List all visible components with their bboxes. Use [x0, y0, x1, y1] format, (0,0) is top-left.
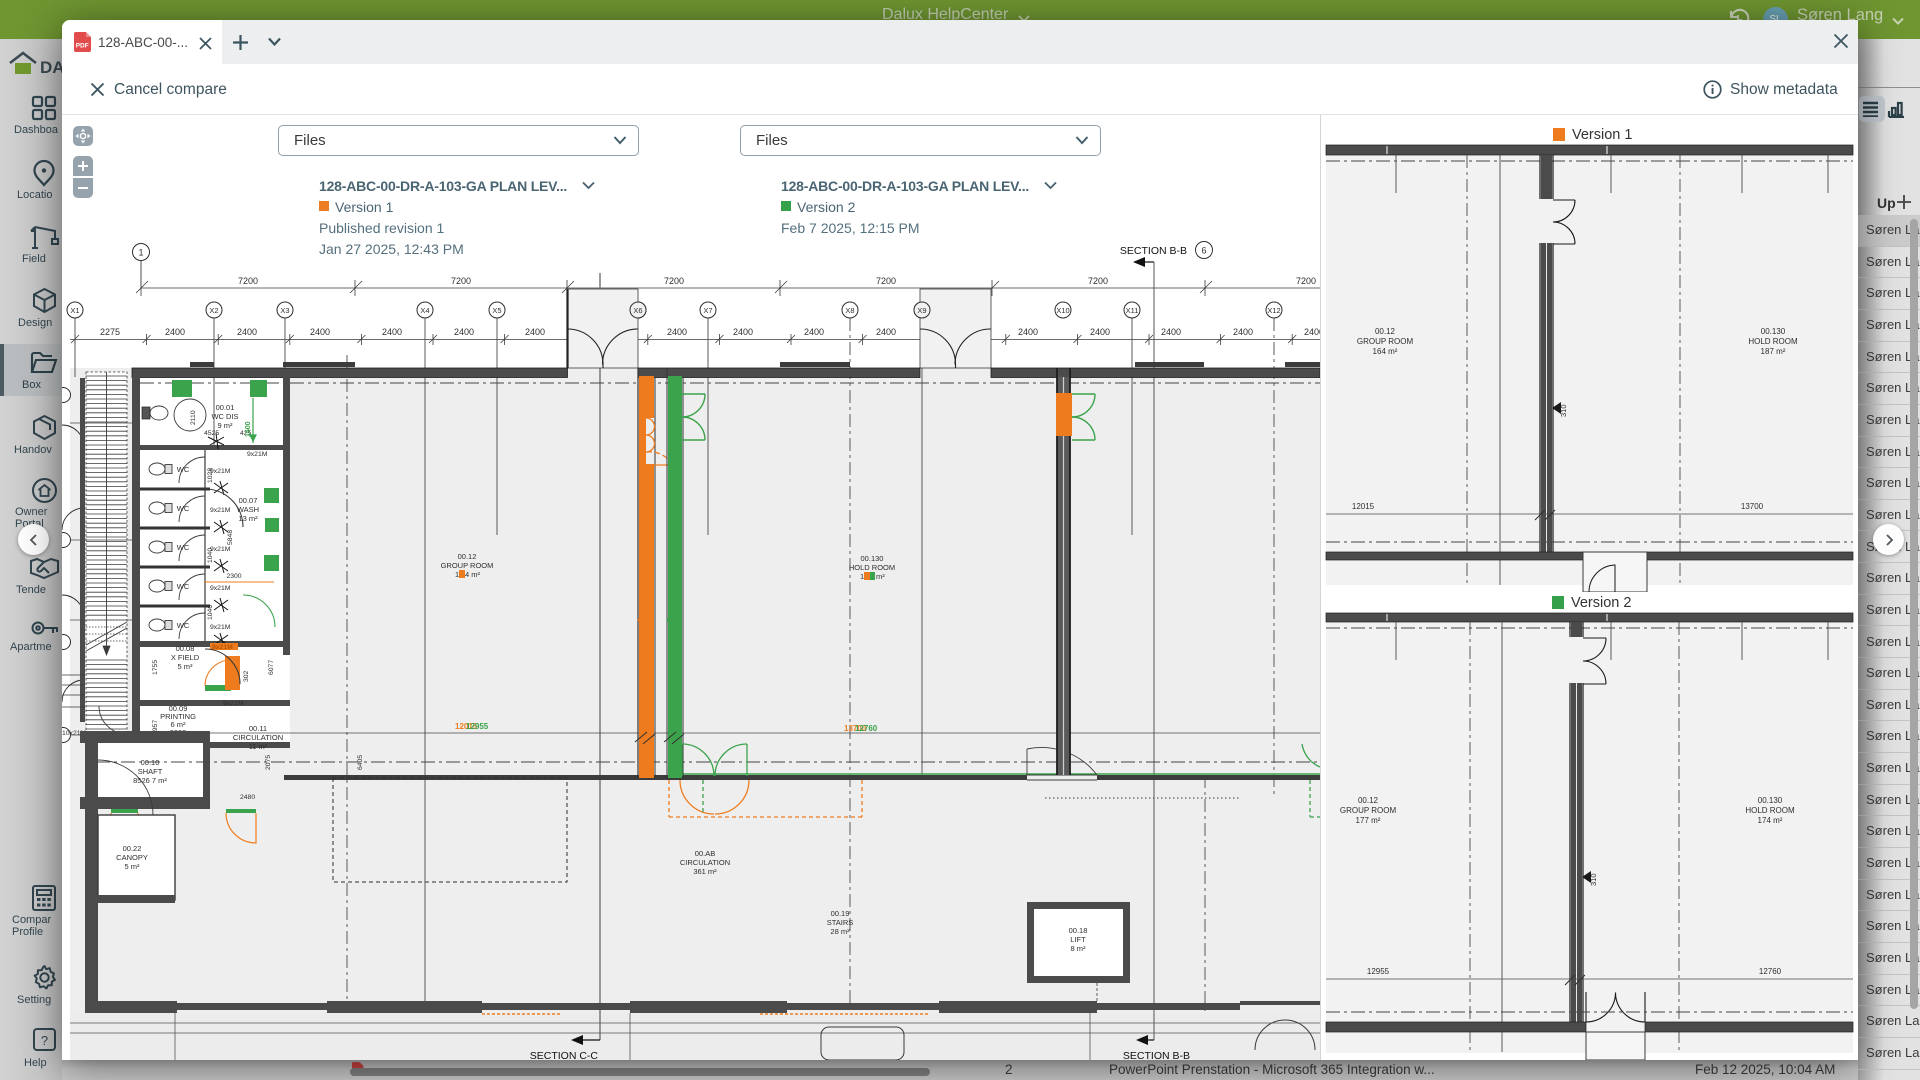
svg-text:SECTION C-C: SECTION C-C [530, 1050, 599, 1060]
svg-text:1: 1 [455, 570, 459, 579]
svg-text:Version 2: Version 2 [1571, 595, 1631, 611]
svg-text:2400: 2400 [237, 327, 257, 337]
svg-text:STAIRS: STAIRS [827, 918, 854, 927]
svg-text:2400: 2400 [1018, 327, 1038, 337]
svg-text:X1: X1 [70, 306, 79, 315]
svg-text:7200: 7200 [238, 276, 258, 286]
svg-text:00.130: 00.130 [1758, 796, 1783, 805]
svg-text:00.AB: 00.AB [695, 849, 715, 858]
svg-text:00.22: 00.22 [123, 844, 142, 853]
svg-text:174 m²: 174 m² [1758, 816, 1783, 825]
svg-text:LIFT: LIFT [1070, 935, 1086, 944]
svg-text:9x21M: 9x21M [210, 585, 231, 592]
svg-text:310: 310 [1559, 404, 1568, 417]
svg-text:2400: 2400 [382, 327, 402, 337]
svg-text:2400: 2400 [1090, 327, 1110, 337]
svg-text:Version 1: Version 1 [1572, 127, 1632, 143]
svg-text:310: 310 [1589, 873, 1598, 886]
svg-text:X5: X5 [492, 306, 501, 315]
svg-text:310: 310 [643, 624, 652, 637]
svg-text:7200: 7200 [1088, 276, 1108, 286]
svg-text:5848: 5848 [227, 530, 234, 545]
svg-text:X10: X10 [1056, 306, 1069, 315]
svg-text:310: 310 [672, 624, 681, 637]
svg-text:GROUP ROOM: GROUP ROOM [441, 561, 494, 570]
svg-text:WC DIS: WC DIS [211, 412, 238, 421]
svg-text:CIRCULATION: CIRCULATION [233, 733, 283, 742]
svg-text:9x21M: 9x21M [247, 451, 268, 458]
svg-text:WC: WC [177, 621, 190, 630]
svg-text:5 m²: 5 m² [125, 862, 141, 871]
svg-text:WC: WC [177, 582, 190, 591]
svg-text:11 m²: 11 m² [249, 742, 268, 751]
svg-text:SECTION B-B: SECTION B-B [1120, 245, 1187, 257]
svg-text:13700: 13700 [1741, 502, 1764, 511]
svg-text:9x21M: 9x21M [210, 507, 231, 514]
svg-text:HOLD ROOM: HOLD ROOM [1748, 337, 1798, 346]
svg-text:00.01: 00.01 [216, 403, 235, 412]
svg-text:4 m²: 4 m² [465, 570, 481, 579]
svg-text:12760: 12760 [855, 724, 878, 733]
svg-text:9 m²: 9 m² [218, 421, 234, 430]
svg-text:12015: 12015 [1352, 502, 1375, 511]
svg-text:361 m²: 361 m² [693, 867, 717, 876]
svg-text:WC: WC [177, 504, 190, 513]
svg-text:GROUP ROOM: GROUP ROOM [1340, 806, 1397, 815]
svg-text:?: ? [41, 1033, 48, 1048]
svg-text:7200: 7200 [664, 276, 684, 286]
svg-text:HOLD ROOM: HOLD ROOM [849, 563, 895, 572]
svg-text:SHAFT: SHAFT [138, 767, 163, 776]
svg-text:00.19: 00.19 [831, 909, 850, 918]
svg-text:1755: 1755 [152, 660, 159, 675]
svg-text:9x21M: 9x21M [223, 700, 244, 707]
svg-text:2300: 2300 [226, 573, 241, 580]
svg-text:X7: X7 [703, 306, 712, 315]
svg-text:12760: 12760 [1759, 967, 1782, 976]
svg-text:m²: m² [876, 572, 885, 581]
svg-text:1040: 1040 [207, 548, 214, 563]
svg-text:7200: 7200 [1296, 276, 1316, 286]
svg-text:177 m²: 177 m² [1356, 816, 1381, 825]
svg-text:2400: 2400 [1304, 327, 1320, 337]
svg-text:4525: 4525 [204, 430, 219, 437]
svg-text:2400: 2400 [1161, 327, 1181, 337]
svg-text:X6: X6 [633, 306, 642, 315]
svg-text:7200: 7200 [451, 276, 471, 286]
svg-text:164 m²: 164 m² [1373, 347, 1398, 356]
svg-text:12955: 12955 [466, 722, 489, 731]
svg-text:PDF: PDF [76, 43, 89, 50]
svg-text:WC: WC [177, 543, 190, 552]
svg-text:5 m³: 5 m³ [178, 662, 194, 671]
svg-text:2110: 2110 [190, 410, 197, 425]
svg-text:1500: 1500 [245, 421, 252, 437]
svg-text:00.12: 00.12 [458, 552, 477, 561]
svg-text:X2: X2 [209, 306, 218, 315]
svg-text:HOLD ROOM: HOLD ROOM [1745, 806, 1795, 815]
svg-text:9x21M: 9x21M [210, 624, 231, 631]
svg-text:00.18: 00.18 [1069, 926, 1088, 935]
svg-text:8 m²: 8 m² [1071, 944, 1087, 953]
svg-text:2400: 2400 [876, 327, 896, 337]
svg-text:2400: 2400 [454, 327, 474, 337]
svg-text:X4: X4 [420, 306, 429, 315]
svg-text:X9: X9 [917, 306, 926, 315]
svg-text:1040: 1040 [207, 605, 214, 620]
svg-text:2275: 2275 [100, 327, 120, 337]
svg-text:GROUP ROOM: GROUP ROOM [1357, 337, 1414, 346]
svg-text:2400: 2400 [165, 327, 185, 337]
svg-text:WC: WC [177, 465, 190, 474]
svg-text:00.130: 00.130 [1761, 327, 1786, 336]
svg-text:X11: X11 [1126, 306, 1139, 315]
svg-text:2480: 2480 [240, 794, 255, 801]
svg-text:28 m²: 28 m² [830, 927, 850, 936]
svg-text:X FIELD: X FIELD [171, 653, 200, 662]
svg-text:6077: 6077 [268, 660, 275, 675]
svg-text:SECTION B-B: SECTION B-B [1123, 1050, 1190, 1060]
svg-text:X8: X8 [845, 306, 854, 315]
svg-text:2400: 2400 [525, 327, 545, 337]
svg-text:1: 1 [860, 572, 864, 581]
svg-text:00.08: 00.08 [176, 644, 195, 653]
svg-text:6: 6 [1201, 246, 1206, 256]
svg-text:7200: 7200 [876, 276, 896, 286]
svg-text:2400: 2400 [310, 327, 330, 337]
svg-text:2400: 2400 [804, 327, 824, 337]
svg-text:2400: 2400 [1233, 327, 1253, 337]
svg-text:187 m²: 187 m² [1761, 347, 1786, 356]
svg-text:2400: 2400 [733, 327, 753, 337]
svg-text:CANOPY: CANOPY [116, 853, 148, 862]
svg-text:DAL: DAL [40, 58, 62, 77]
svg-text:1028: 1028 [207, 468, 214, 483]
svg-text:CIRCULATION: CIRCULATION [680, 858, 730, 867]
svg-text:00.12: 00.12 [1358, 796, 1379, 805]
svg-text:302: 302 [243, 670, 250, 682]
svg-text:00.07: 00.07 [239, 496, 258, 505]
svg-text:1: 1 [138, 248, 143, 258]
svg-text:2400: 2400 [667, 327, 687, 337]
svg-text:12955: 12955 [1367, 967, 1390, 976]
svg-text:00.12: 00.12 [1375, 327, 1396, 336]
svg-text:00.130: 00.130 [861, 554, 884, 563]
svg-text:X12: X12 [1267, 306, 1280, 315]
svg-text:00.11: 00.11 [249, 724, 267, 733]
svg-text:X3: X3 [280, 306, 289, 315]
